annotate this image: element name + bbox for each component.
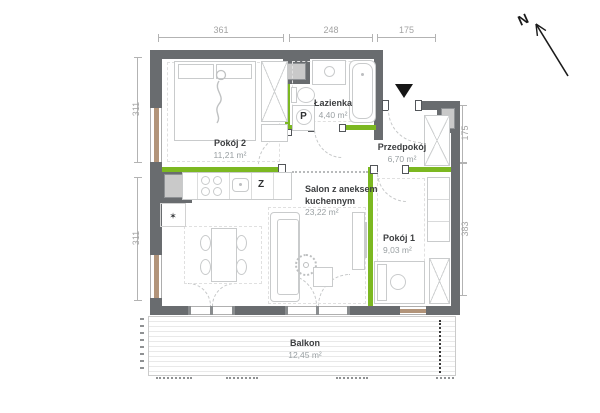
- dim-top-2: 248: [289, 37, 373, 38]
- wall-bottom-3: [350, 306, 400, 315]
- balcony-edge-dash: [436, 377, 454, 379]
- bedside-stool: [390, 274, 406, 290]
- kitchen-sink-drain: [239, 183, 242, 186]
- side-table: [313, 267, 333, 287]
- dim-value: 248: [320, 25, 341, 35]
- window-sill: [154, 108, 159, 162]
- balcony-divider: [439, 320, 441, 373]
- wall-bottom-4: [426, 306, 460, 315]
- dim-value: 175: [460, 119, 470, 147]
- entrance-marker-icon: [395, 84, 413, 98]
- wall-bottom-2: [235, 306, 285, 315]
- chair: [236, 235, 247, 251]
- balcony-door-frame-left: [188, 306, 235, 315]
- open-boundary-salon-hall: [292, 171, 368, 173]
- room-area: 12,45 m²: [230, 350, 380, 361]
- dim-left-1: 311: [137, 57, 138, 163]
- balcony-edge-dash: [336, 377, 368, 379]
- dishwasher-label: Z: [250, 179, 272, 190]
- chair: [200, 235, 211, 251]
- north-label: N: [515, 10, 531, 29]
- dim-left-2: 311: [137, 177, 138, 301]
- dim-top-3: 175: [377, 37, 436, 38]
- room-label-lazienka: Łazienka 4,40 m²: [295, 98, 371, 121]
- room-label-pokoj1: Pokój 1 9,03 m²: [383, 233, 433, 256]
- door-arc-balcony-left-b: [212, 283, 235, 306]
- window-pokoj1: [400, 306, 426, 315]
- balcony-edge-dash: [226, 377, 258, 379]
- balcony-left-railing: [140, 318, 144, 374]
- room-name: Przedpokój: [378, 142, 427, 152]
- door-jamb: [347, 306, 350, 315]
- door-jamb: [188, 306, 191, 315]
- balcony-door-frame-right: [285, 306, 350, 315]
- room-area: 23,22 m²: [305, 207, 385, 218]
- bathtub-drain: [361, 73, 364, 76]
- dim-right-1: 175: [462, 105, 463, 163]
- star-cell: ✶: [160, 203, 186, 227]
- wardrobe: [261, 61, 288, 122]
- door-jamb: [210, 306, 213, 315]
- dim-value: 311: [131, 95, 141, 123]
- tv-screen: [364, 222, 367, 258]
- wall-bottom-1: [150, 306, 188, 315]
- room-name: Pokój 1: [383, 233, 415, 243]
- wall-top: [150, 50, 383, 59]
- stove-burner: [213, 187, 222, 196]
- dim-value: 175: [396, 25, 417, 35]
- stove-burner: [201, 187, 210, 196]
- counter-divider: [229, 173, 230, 199]
- north-arrow-icon: N: [510, 8, 590, 86]
- counter-divider: [197, 173, 198, 199]
- plant-center: [303, 262, 309, 268]
- dining-table: [211, 228, 237, 282]
- kitchen-counter: [182, 172, 292, 200]
- stove-burner: [213, 176, 222, 185]
- counter-divider: [273, 173, 274, 199]
- wall-left-upper: [150, 50, 162, 108]
- room-label-balkon: Balkon 12,45 m²: [230, 338, 380, 361]
- window-left-upper: [150, 108, 162, 162]
- sofa-seat: [277, 219, 299, 295]
- star-symbol: ✶: [169, 211, 177, 221]
- door-jamb: [316, 306, 319, 315]
- stove-burner: [201, 176, 210, 185]
- chair: [236, 259, 247, 275]
- wall-right: [451, 101, 460, 315]
- door-jamb: [285, 306, 288, 315]
- pillow: [377, 264, 387, 301]
- room-area: 11,21 m²: [165, 150, 295, 161]
- room-area: 6,70 m²: [368, 154, 436, 165]
- room-area: 9,03 m²: [383, 245, 433, 256]
- room-label-salon: Salon z aneksem kuchennym 23,22 m²: [305, 184, 385, 218]
- dim-value: 361: [210, 25, 231, 35]
- chair: [200, 259, 211, 275]
- room-label-pokoj2: Pokój 2 11,21 m²: [165, 138, 295, 161]
- room-name: Łazienka: [314, 98, 352, 108]
- dim-value: 383: [460, 215, 470, 243]
- dim-top-1: 361: [158, 37, 284, 38]
- room-name: Salon z aneksem kuchennym: [305, 184, 378, 206]
- door-arc-entrance: [388, 110, 421, 143]
- door-arc-balcony-left-a: [188, 283, 211, 306]
- room-label-przedpokoj: Przedpokój 6,70 m²: [368, 142, 436, 165]
- floor-plan: 361 248 175 311 311 175 383 606 236 N: [0, 0, 600, 413]
- partition-bathroom-south-right: [342, 125, 376, 130]
- room-area: 4,40 m²: [295, 110, 371, 121]
- washbasin-bowl: [324, 66, 335, 77]
- person-figure: [205, 66, 235, 128]
- dim-value: 311: [131, 224, 141, 252]
- room-name: Pokój 2: [214, 138, 246, 148]
- pokoj1-wardrobe: [429, 258, 450, 304]
- room-name: Balkon: [290, 338, 320, 348]
- door-jamb: [232, 306, 235, 315]
- window-sill: [154, 255, 159, 298]
- window-left-lower: [150, 255, 162, 298]
- door-arc-bathroom: [314, 128, 342, 158]
- dim-right-2: 383: [462, 163, 463, 296]
- partition-przedpokoj-pokoj1: [407, 167, 451, 172]
- balcony-edge-dash: [156, 377, 192, 379]
- window-sill: [400, 309, 426, 313]
